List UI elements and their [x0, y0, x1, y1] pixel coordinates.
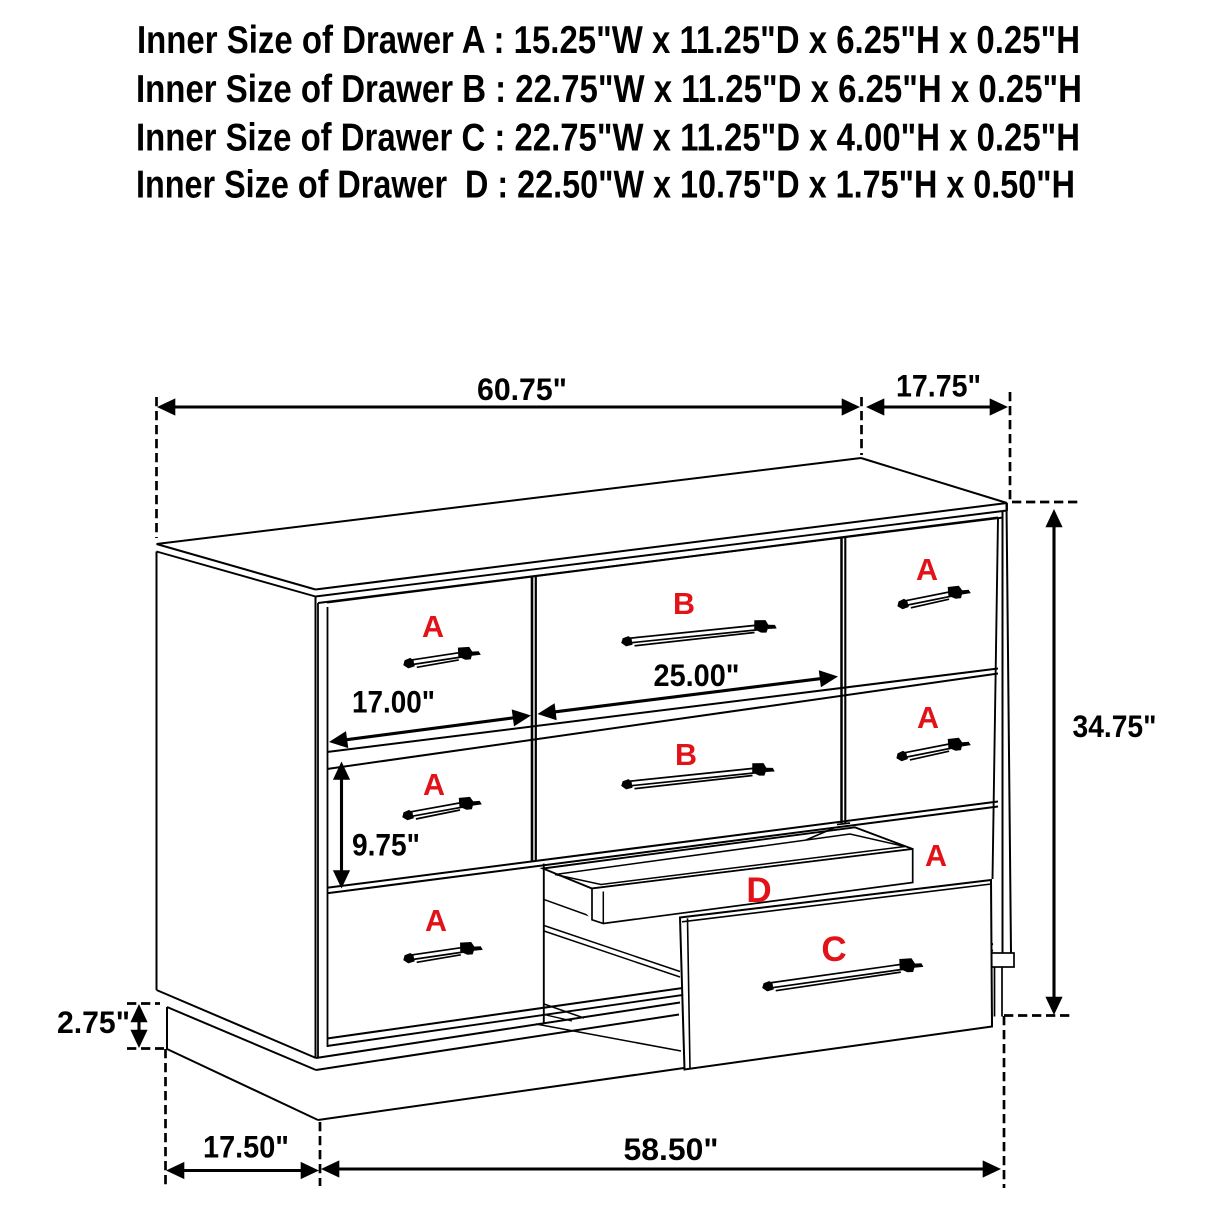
svg-text:A: A [423, 768, 445, 802]
svg-text:34.75": 34.75" [1073, 708, 1157, 744]
svg-text:A: A [422, 610, 444, 644]
svg-text:B: B [675, 738, 697, 772]
svg-text:17.75": 17.75" [896, 368, 981, 404]
svg-text:Inner Size of Drawer A : 15.25: Inner Size of Drawer A : 15.25"W x 11.25… [137, 19, 1080, 62]
svg-text:A: A [916, 553, 938, 587]
svg-text:Inner Size of Drawer C : 22.75: Inner Size of Drawer C : 22.75"W x 11.25… [136, 117, 1080, 160]
svg-text:58.50": 58.50" [624, 1131, 719, 1167]
svg-text:B: B [673, 587, 695, 621]
svg-text:17.00": 17.00" [352, 684, 435, 720]
svg-text:Inner Size of Drawer D : 22.5: Inner Size of Drawer D : 22.50"W x 10.75… [136, 164, 1075, 207]
svg-text:C: C [821, 930, 846, 969]
svg-text:D: D [746, 871, 771, 910]
svg-text:A: A [917, 701, 939, 735]
svg-text:A: A [425, 904, 447, 938]
svg-text:A: A [925, 839, 947, 873]
svg-text:Inner Size of Drawer B : 22.75: Inner Size of Drawer B : 22.75"W x 11.25… [136, 68, 1082, 111]
svg-text:9.75": 9.75" [352, 827, 420, 863]
svg-text:2.75": 2.75" [57, 1004, 130, 1040]
svg-text:17.50": 17.50" [203, 1129, 289, 1165]
svg-text:25.00": 25.00" [654, 657, 740, 693]
svg-text:60.75": 60.75" [477, 371, 567, 407]
